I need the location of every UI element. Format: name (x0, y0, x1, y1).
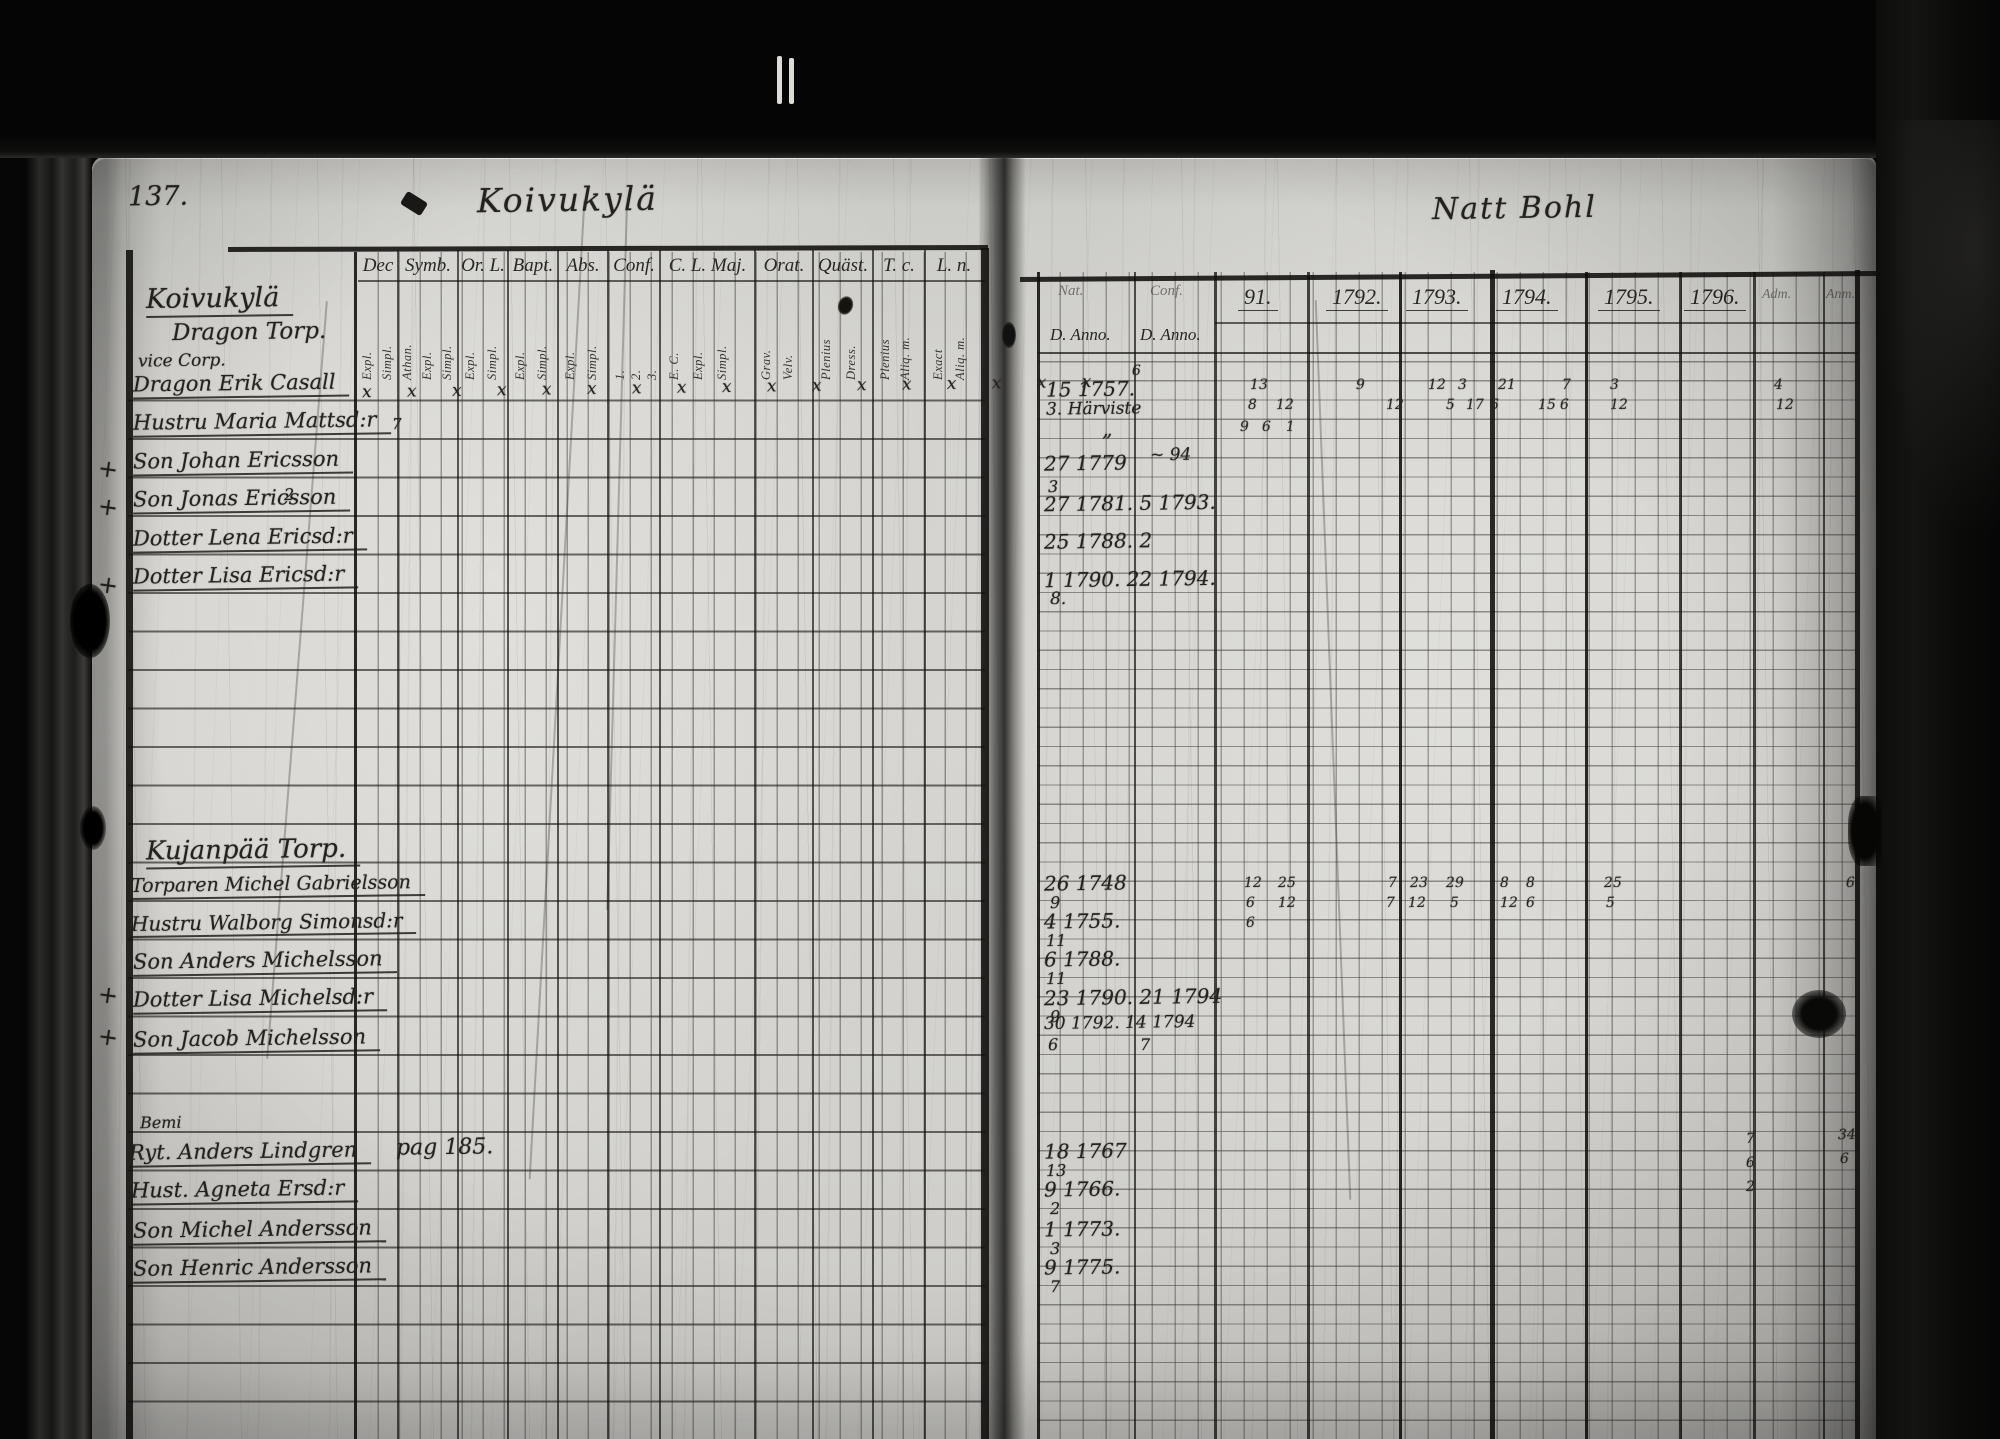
book-edge-left (0, 0, 92, 1439)
binding-mark-icon (789, 58, 794, 104)
vignette (92, 156, 1876, 1439)
binding-mark-icon (777, 56, 782, 104)
scan-background-top (0, 0, 2000, 158)
book-scan: 137. Koivukylä Natt Bohl x x x x x x x x… (0, 0, 2000, 1439)
scan-glow (1876, 120, 2000, 540)
